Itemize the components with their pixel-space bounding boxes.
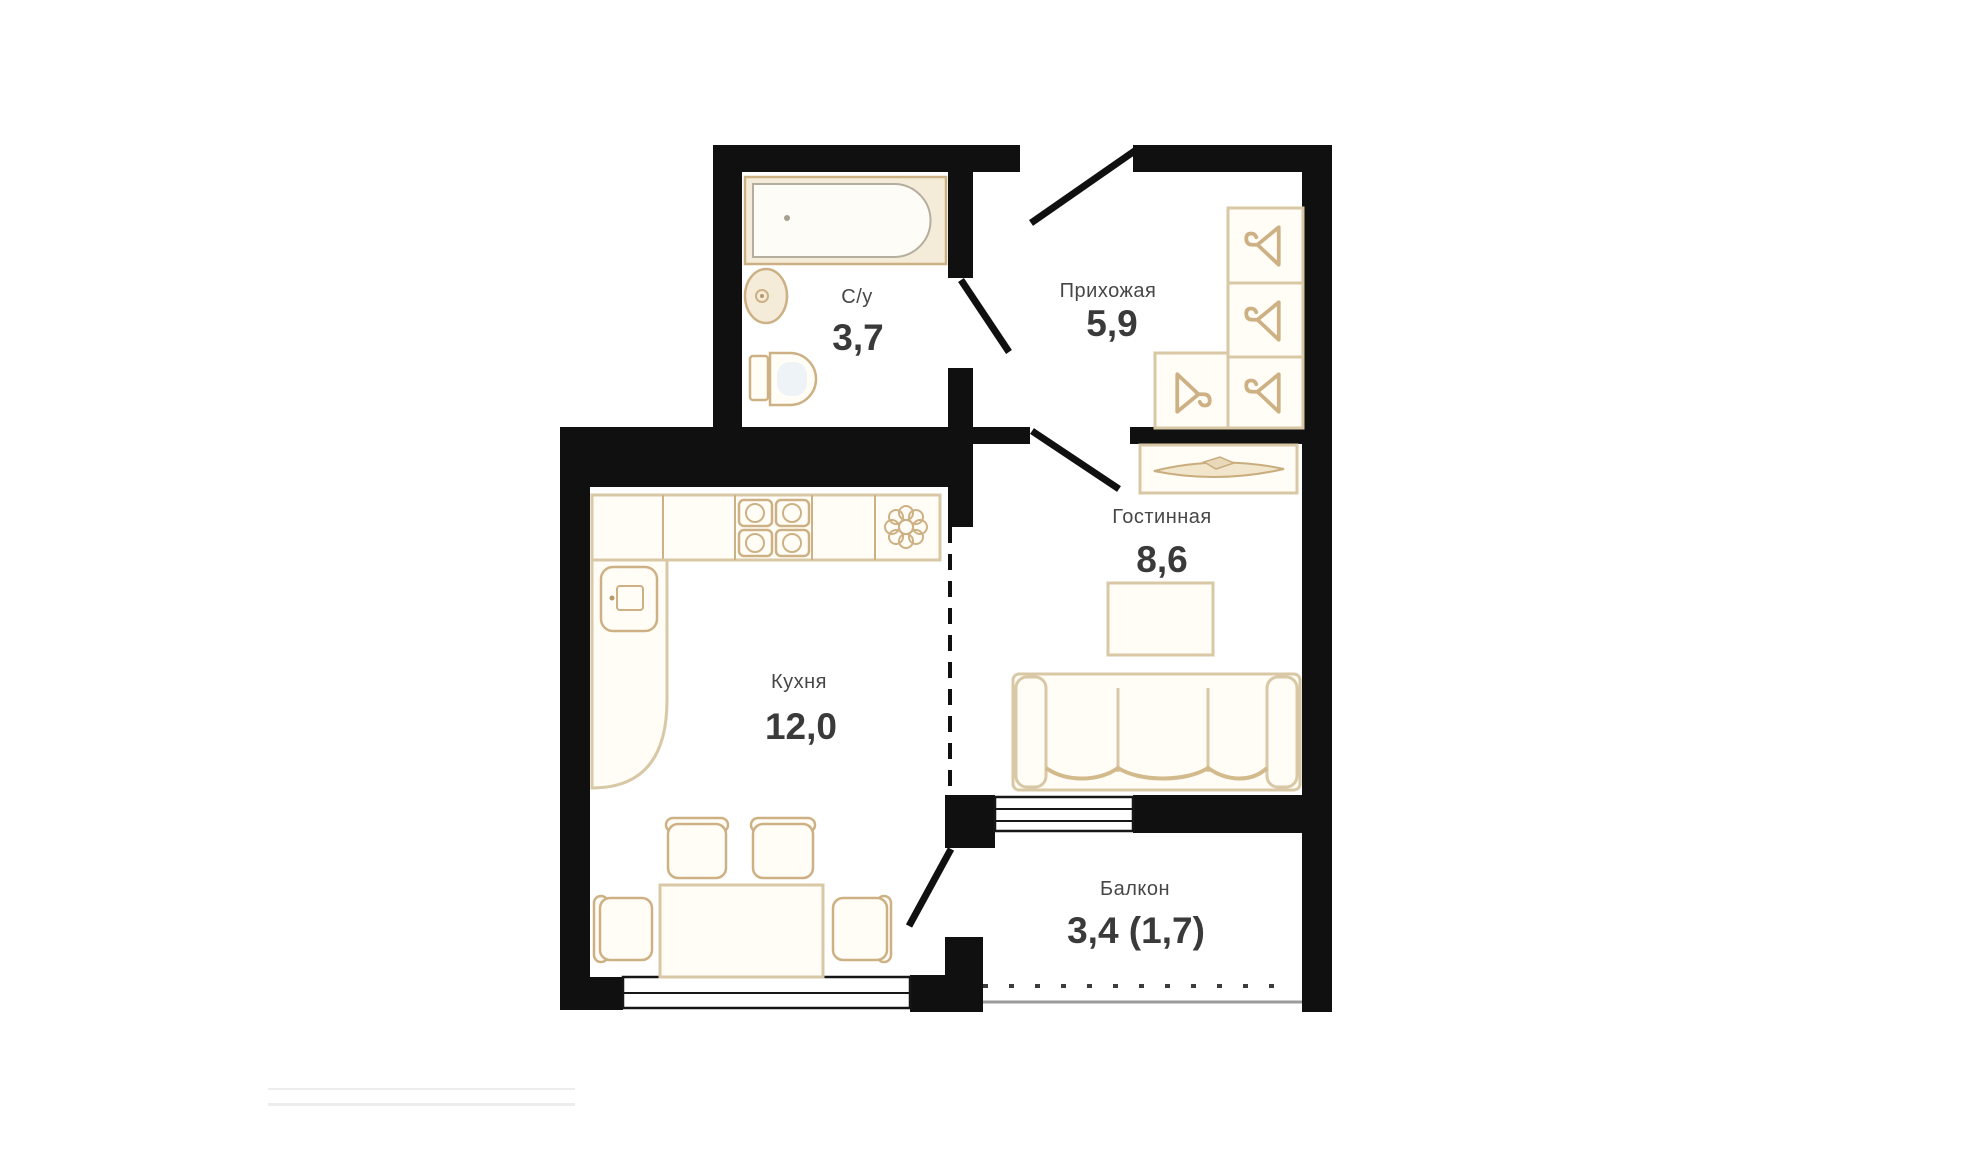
room-area-bathroom: 3,7 [832,317,883,358]
faint-line [268,1088,575,1090]
room-area-kitchen: 12,0 [765,706,837,747]
bathtub-inner [753,184,931,257]
wardrobe-side-cell [1155,353,1228,428]
faint-line [268,1103,575,1106]
wall-balcony-door-lower-stub [945,937,983,977]
dining-set [594,818,891,977]
room-area-living-room: 8,6 [1136,539,1187,580]
room-label-bathroom: С/у [841,286,873,308]
room-label-balcony: Балкон [1100,878,1170,900]
balcony-door-icon [909,849,951,926]
room-label-hallway: Прихожая [1060,280,1157,302]
living-room-door-icon [1032,431,1119,489]
washbasin-icon [745,269,787,323]
wall-mid-horizontal [560,427,973,487]
washbasin-tap-dot [760,294,764,298]
bathtub-drain-dot [784,215,790,221]
wall-bottom-kitchen-right [910,975,983,1012]
room-area-hallway: 5,9 [1086,303,1137,344]
kitchen-sink-icon [601,567,657,631]
wardrobe-icon [1228,208,1303,428]
sofa-armrest-left [1016,677,1046,787]
room-area-balcony: 3,4 (1,7) [1067,910,1205,951]
room-label-living-room: Гостинная [1112,506,1212,528]
chair-icon [753,824,813,878]
room-label-kitchen: Кухня [771,671,827,693]
chair-icon [833,898,887,960]
toilet-cistern [750,356,768,400]
wall-bathroom-left [713,145,742,427]
hallway-furniture [1155,208,1303,428]
wall-bathroom-right-upper [948,172,973,278]
bathroom-door-icon [961,280,1009,352]
wall-bathroom-right-lower [948,368,973,427]
wall-hallway-bottom-left [973,427,1030,444]
coffee-table-icon [1108,583,1213,655]
wall-bottom-left-corner [560,977,623,1010]
dining-table-icon [660,885,823,977]
wall-balcony-door-upper-stub [945,795,995,848]
wall-top-bathroom [713,145,1020,172]
living-balcony-window-icon [995,797,1133,831]
living-room-furniture [1013,445,1300,790]
sofa-armrest-right [1267,677,1297,787]
chair-icon [600,898,652,960]
floor-plan-page: С/у 3,7 Прихожая 5,9 Гостинная 8,6 Кухня… [0,0,1980,1155]
kitchen-sink-tap-dot [610,596,615,601]
floor-plan: С/у 3,7 Прихожая 5,9 Гостинная 8,6 Кухня… [0,0,1980,1155]
chair-icon [668,824,726,878]
wall-right [1302,145,1332,1012]
walls [560,145,1332,1012]
toilet-bowl-inner [777,362,807,396]
wall-left [560,427,590,1010]
entrance-door-icon [1031,150,1136,223]
wall-partition-stub [948,487,973,527]
wall-hallway-bottom-right [1130,427,1302,444]
wall-living-bottom [1133,795,1302,833]
